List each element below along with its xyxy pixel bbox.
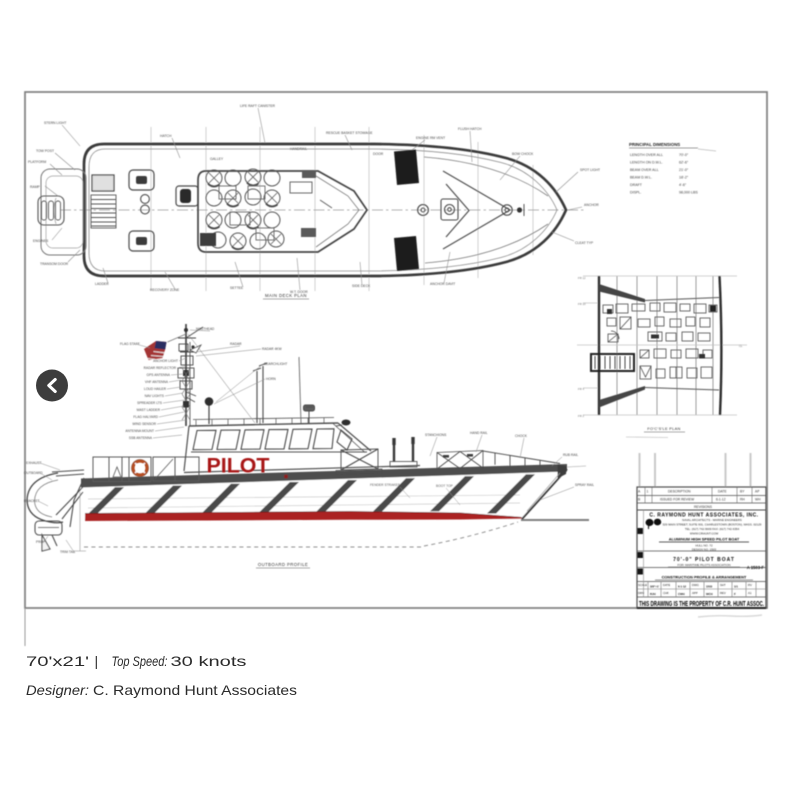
svg-text:4'-6": 4'-6" xyxy=(679,183,687,187)
svg-text:FOR: MARITIME PILOTS ASSOCIAT: FOR: MARITIME PILOTS ASSOCIATION xyxy=(677,563,730,567)
svg-text:BOOT TOP: BOOT TOP xyxy=(436,484,454,488)
svg-text:THIS DRAWING IS THE PROPERTY O: THIS DRAWING IS THE PROPERTY OF C.R. HUN… xyxy=(639,601,764,608)
svg-text:HAND RAIL: HAND RAIL xyxy=(470,431,488,435)
svg-text:BEAM D.W.L.: BEAM D.W.L. xyxy=(630,176,652,180)
svg-text:6-1-12: 6-1-12 xyxy=(716,497,726,501)
svg-text:CONSTRUCTION PROFILE & ARRANGE: CONSTRUCTION PROFILE & ARRANGEMENT xyxy=(662,575,747,580)
svg-text:A1: A1 xyxy=(748,591,752,595)
svg-text:GPS ANTENNA: GPS ANTENNA xyxy=(147,373,171,377)
svg-text:RADAR 4KW: RADAR 4KW xyxy=(262,347,282,351)
svg-text:BRACKET: BRACKET xyxy=(24,499,40,503)
svg-text:FR 2: FR 2 xyxy=(578,414,585,418)
svg-text:RAMP: RAMP xyxy=(30,185,41,189)
svg-text:70'x21': 70'x21' xyxy=(26,653,89,669)
svg-text:RADAR: RADAR xyxy=(230,342,242,346)
svg-text:PLATFORM: PLATFORM xyxy=(28,160,46,164)
svg-text:1503: 1503 xyxy=(706,585,713,589)
svg-text:TEL: (617) 742-5669 FAX: (61: TEL: (617) 742-5669 FAX: (617) 742-6354 xyxy=(685,527,740,531)
svg-text:FR 10: FR 10 xyxy=(578,302,586,306)
svg-text:REV: REV xyxy=(720,591,726,595)
svg-text:6-1-12: 6-1-12 xyxy=(678,585,687,589)
svg-text:21'-0": 21'-0" xyxy=(679,168,689,172)
svg-text:ISSUED FOR REVIEW: ISSUED FOR REVIEW xyxy=(660,497,695,501)
svg-text:FLUSH HATCH: FLUSH HATCH xyxy=(458,127,482,131)
svg-text:SHT: SHT xyxy=(720,583,726,587)
svg-text:DOOR: DOOR xyxy=(373,152,384,156)
svg-text:NAV LIGHTS: NAV LIGHTS xyxy=(145,394,165,398)
svg-text:APP: APP xyxy=(692,591,698,595)
svg-text:DESCRIPTION: DESCRIPTION xyxy=(668,490,691,494)
svg-text:VHF ANTENNA: VHF ANTENNA xyxy=(145,380,169,384)
svg-text:CHOCK: CHOCK xyxy=(515,434,528,438)
svg-text:HANDRAIL: HANDRAIL xyxy=(290,147,307,151)
svg-text:CWH: CWH xyxy=(678,592,685,596)
svg-text:RV: RV xyxy=(748,583,752,587)
svg-text:DESIGN NO. 1503: DESIGN NO. 1503 xyxy=(692,548,717,552)
svg-text:RADAR REFLECTOR: RADAR REFLECTOR xyxy=(144,366,177,370)
svg-text:RESCUE BASKET STOWAGE: RESCUE BASKET STOWAGE xyxy=(326,131,373,135)
svg-text:18'-2": 18'-2" xyxy=(679,176,689,180)
svg-text:BEAM OVER ALL: BEAM OVER ALL xyxy=(630,168,659,172)
svg-text:DWG: DWG xyxy=(692,583,699,587)
svg-text:TRANSOM DOOR: TRANSOM DOOR xyxy=(40,262,69,266)
svg-text:FR 4: FR 4 xyxy=(578,387,585,391)
svg-text:STERN LIGHT: STERN LIGHT xyxy=(44,121,66,125)
svg-text:62'-6": 62'-6" xyxy=(679,161,689,165)
svg-text:EXHAUST: EXHAUST xyxy=(26,461,42,465)
svg-text:1: 1 xyxy=(647,490,649,494)
svg-text:30 knots: 30 knots xyxy=(171,653,247,669)
svg-text:ANCHOR DAVIT: ANCHOR DAVIT xyxy=(430,282,455,286)
svg-text:WH: WH xyxy=(755,497,761,501)
svg-text:FENDER STRAKES: FENDER STRAKES xyxy=(370,483,401,487)
svg-text:GALLEY: GALLEY xyxy=(210,157,224,161)
svg-text:LIFE RAFT CANISTER: LIFE RAFT CANISTER xyxy=(240,104,276,108)
svg-text:3/8"=1': 3/8"=1' xyxy=(650,585,659,589)
svg-text:FO'C'S'LE PLAN: FO'C'S'LE PLAN xyxy=(647,426,680,431)
svg-text:SPOT LIGHT: SPOT LIGHT xyxy=(580,168,600,172)
svg-text:WWW.CRHUNT.COM: WWW.CRHUNT.COM xyxy=(690,532,719,536)
svg-text:BOW CHOCK: BOW CHOCK xyxy=(512,152,534,156)
svg-text:PRINCIPAL DIMENSIONS: PRINCIPAL DIMENSIONS xyxy=(629,142,680,147)
svg-text:DISPL.: DISPL. xyxy=(630,191,641,195)
svg-text:HATCH: HATCH xyxy=(160,134,172,138)
svg-text:LOUD HAILER: LOUD HAILER xyxy=(144,387,167,391)
svg-text:ANTENNA MOUNT: ANTENNA MOUNT xyxy=(125,429,154,433)
svg-text:C. Raymond Hunt Associates: C. Raymond Hunt Associates xyxy=(93,682,297,698)
svg-text:ANCHOR LIGHT: ANCHOR LIGHT xyxy=(153,359,178,363)
svg-text:PROP: PROP xyxy=(36,540,46,544)
svg-text:HORN: HORN xyxy=(266,377,276,381)
svg-text:SPREADER LTS: SPREADER LTS xyxy=(137,401,163,405)
svg-text:TRIM TAB: TRIM TAB xyxy=(60,550,76,554)
svg-text:SEARCHLIGHT: SEARCHLIGHT xyxy=(264,362,287,366)
svg-text:98,000 LBS: 98,000 LBS xyxy=(679,191,698,195)
svg-text:STANCHIONS: STANCHIONS xyxy=(425,433,447,437)
svg-text:TOW POST: TOW POST xyxy=(36,149,54,153)
svg-text:SETTEE: SETTEE xyxy=(230,286,244,290)
svg-text:Designer:: Designer: xyxy=(26,682,89,698)
svg-text:WCH: WCH xyxy=(706,592,713,596)
svg-text:RJH: RJH xyxy=(650,592,656,596)
svg-text:SPRAY RAIL: SPRAY RAIL xyxy=(575,483,594,487)
svg-text:F: F xyxy=(734,592,736,596)
svg-text:MAST LADDER: MAST LADDER xyxy=(137,408,161,412)
svg-text:RUB RAIL: RUB RAIL xyxy=(563,453,578,457)
svg-text:1/1: 1/1 xyxy=(734,585,738,589)
svg-text:NAVAL ARCHITECTS - MARINE EN: NAVAL ARCHITECTS - MARINE ENGINEERS xyxy=(682,518,742,522)
svg-text:SSB ANTENNA: SSB ANTENNA xyxy=(129,436,153,440)
svg-text:FLAG HALYARD: FLAG HALYARD xyxy=(133,415,158,419)
svg-text:|: | xyxy=(95,653,99,669)
svg-text:WIND SENSOR: WIND SENSOR xyxy=(132,422,156,426)
svg-text:MAIN DECK PLAN: MAIN DECK PLAN xyxy=(265,293,307,298)
svg-text:Top Speed:: Top Speed: xyxy=(112,653,168,669)
svg-text:RECOVERY ZONE: RECOVERY ZONE xyxy=(150,288,180,292)
svg-text:FR 12: FR 12 xyxy=(578,276,586,280)
svg-text:RH: RH xyxy=(740,497,745,501)
svg-text:CHK: CHK xyxy=(663,591,669,595)
svg-text:LADDER: LADDER xyxy=(95,282,109,286)
svg-text:DATE: DATE xyxy=(718,490,727,494)
svg-text:ANCHOR: ANCHOR xyxy=(584,203,599,207)
svg-text:CLEAT TYP: CLEAT TYP xyxy=(575,241,594,245)
svg-text:529 MAIN STREET, SUITE 601, CH: 529 MAIN STREET, SUITE 601, CHARLESTOWN … xyxy=(663,523,762,527)
svg-text:PILOT: PILOT xyxy=(207,455,270,478)
svg-text:CL: CL xyxy=(739,344,743,348)
svg-text:ENGINES: ENGINES xyxy=(33,239,49,243)
svg-text:DATE: DATE xyxy=(663,583,670,587)
svg-text:LENGTH OVER ALL: LENGTH OVER ALL xyxy=(630,153,663,157)
svg-text:REVISIONS: REVISIONS xyxy=(694,505,713,509)
svg-text:SCALE: SCALE xyxy=(638,583,647,587)
svg-text:A 1503-F: A 1503-F xyxy=(747,565,765,570)
svg-text:ALUMINUM HIGH SPEED PILOT BOAT: ALUMINUM HIGH SPEED PILOT BOAT xyxy=(669,537,740,542)
svg-text:ENGINE RM VENT: ENGINE RM VENT xyxy=(416,136,445,140)
svg-text:DRN: DRN xyxy=(638,591,644,595)
svg-text:70'-0": 70'-0" xyxy=(679,153,689,157)
svg-text:LENGTH ON D.W.L.: LENGTH ON D.W.L. xyxy=(630,161,663,165)
svg-text:DRAFT: DRAFT xyxy=(630,183,643,187)
svg-text:OUTBOARD PROFILE: OUTBOARD PROFILE xyxy=(258,562,308,567)
svg-text:SIDE DECK: SIDE DECK xyxy=(352,284,371,288)
